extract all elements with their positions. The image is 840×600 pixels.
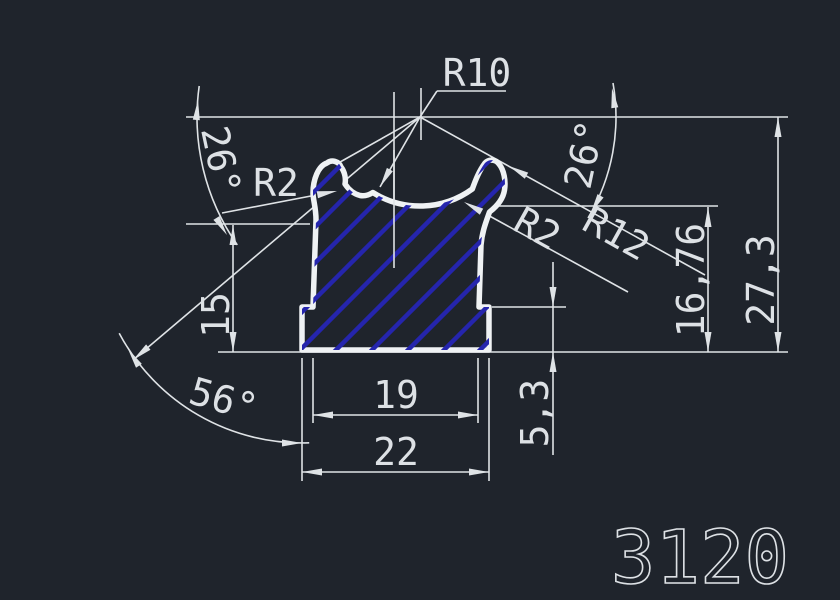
dim-label-15: 15 — [194, 292, 238, 338]
dim-label-53: 5,3 — [513, 379, 557, 448]
arrow-53-top — [550, 287, 557, 307]
arrow-19-left — [313, 412, 333, 419]
arrow-56-left — [128, 349, 142, 368]
part-number: 3120 — [611, 515, 789, 600]
arrow-r10 — [380, 168, 393, 187]
dim-label-1676: 16,76 — [669, 223, 713, 337]
dim-label-angle-left: 26° — [192, 122, 249, 198]
dim-label-r2-right: R2 — [507, 198, 568, 259]
dim-label-r2-left: R2 — [253, 161, 299, 205]
dim-label-angle-right: 26° — [556, 116, 613, 192]
arrow-19-right — [458, 412, 478, 419]
dim-label-r10: R10 — [443, 51, 512, 95]
arrow-26l-top — [193, 100, 200, 120]
arrow-273-top — [775, 117, 782, 137]
arrow-56-right — [282, 440, 302, 447]
cad-drawing-canvas[interactable]: R10 R2 R2 R12 26° 26° 56° 15 19 22 5,3 1… — [0, 0, 840, 600]
arrow-53-bottom — [550, 352, 557, 372]
dim-label-angle-bottom: 56° — [185, 369, 263, 430]
arrow-22-right — [469, 469, 489, 476]
r10-leader — [420, 91, 437, 117]
dim-label-22: 22 — [373, 430, 419, 474]
arrow-22-left — [302, 469, 322, 476]
dim-label-19: 19 — [373, 373, 419, 417]
dim-label-273: 27,3 — [739, 234, 783, 326]
arrow-r12 — [509, 166, 528, 179]
arrow-273-bottom — [775, 332, 782, 352]
apex-ray-left-ear — [333, 117, 420, 166]
dim-label-r12: R12 — [576, 198, 657, 270]
